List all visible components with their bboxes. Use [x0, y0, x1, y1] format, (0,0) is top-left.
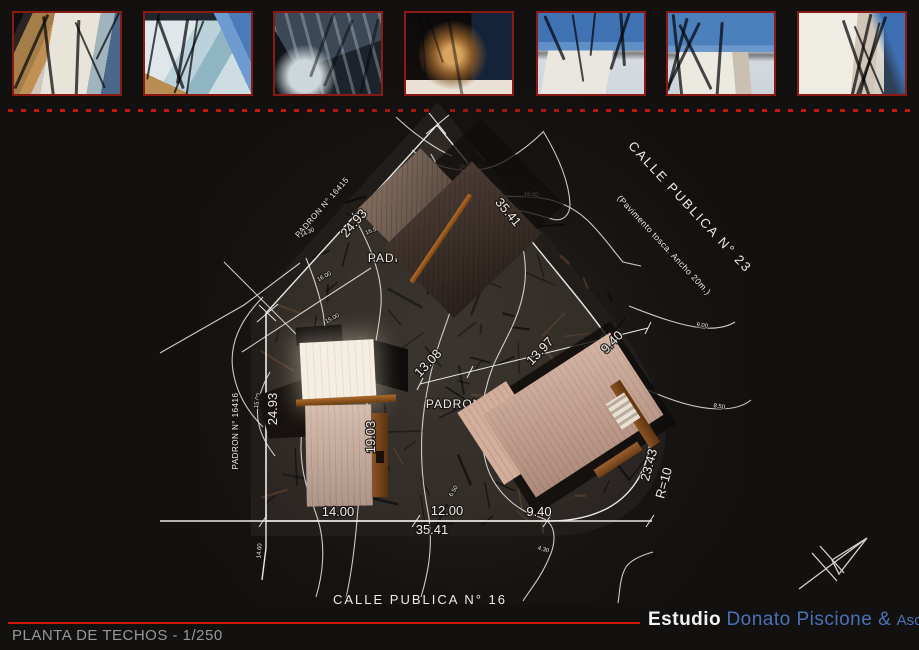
model-photo-strip: [0, 0, 919, 100]
studio-credit: Estudio Donato Piscione & Asoc.: [648, 609, 919, 631]
footer-red-rule: [8, 622, 640, 624]
model-tree-stick: [42, 16, 55, 96]
model-photo: [666, 11, 776, 96]
roof-west-lower-plane: [305, 404, 373, 506]
presentation-board: PADRON N° 16415PADRON N° 16416PADRON N° …: [0, 0, 919, 650]
model-photo: [404, 11, 514, 96]
model-tree-stick: [75, 21, 106, 87]
model-photo: [143, 11, 253, 96]
model-tree-stick: [716, 22, 724, 96]
drawing-title: PLANTA DE TECHOS - 1/250: [12, 627, 223, 644]
model-tree-stick: [360, 18, 380, 93]
model-tree-stick: [572, 15, 585, 82]
model-photo: [536, 11, 646, 96]
studio-suffix: Asoc.: [897, 612, 919, 629]
model-tree-stick: [419, 11, 427, 76]
roof-opening: [376, 451, 384, 463]
model-tree-stick: [447, 18, 464, 96]
model-photo: [12, 11, 122, 96]
model-tree-stick: [543, 15, 565, 60]
roof-west-wood-column: [372, 413, 388, 497]
model-tree-stick: [146, 13, 160, 79]
model-tree-stick: [590, 11, 596, 56]
studio-name: Donato Piscione &: [726, 609, 891, 630]
north-arrow-icon: [799, 538, 867, 589]
model-tree-stick: [96, 12, 121, 61]
model-tree-stick: [426, 14, 444, 63]
studio-name-bold: Estudio: [648, 609, 721, 630]
roof-west-white-plane: [299, 339, 376, 404]
model-photo: [273, 11, 383, 96]
model-photo: [797, 11, 907, 96]
